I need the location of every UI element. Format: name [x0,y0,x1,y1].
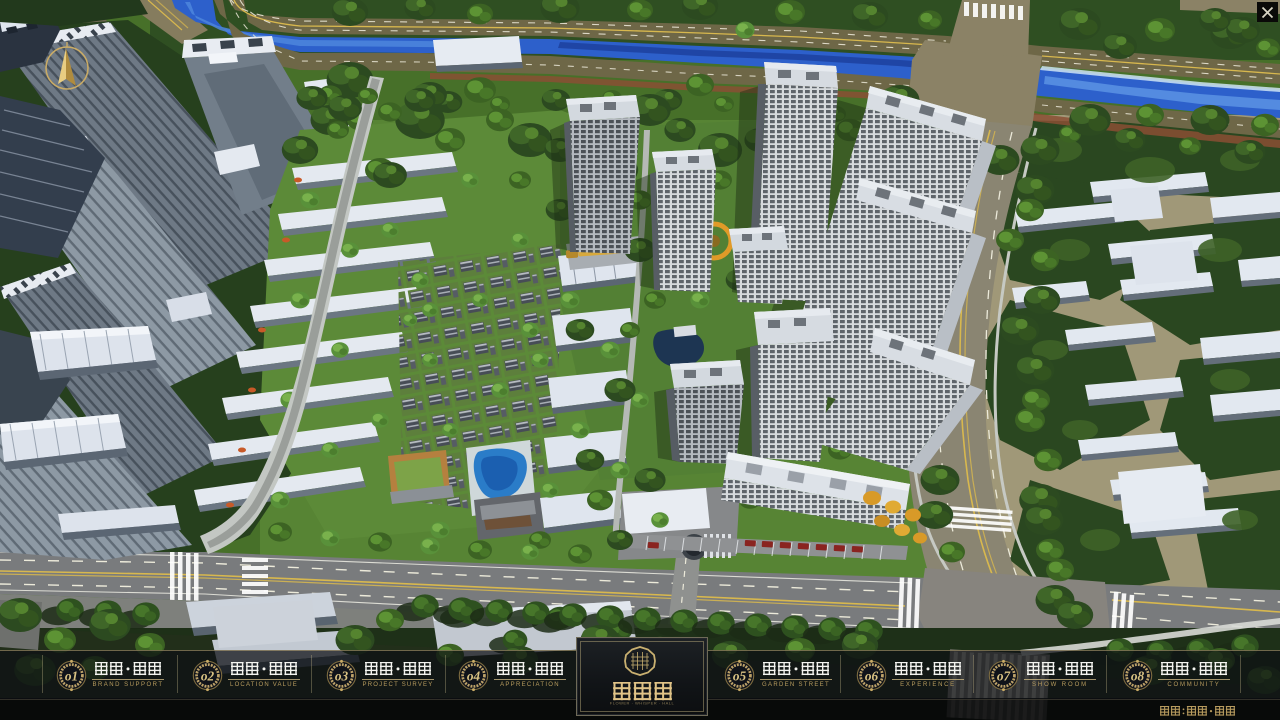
svg-text:o4: o4 [467,669,481,684]
svg-text:o7: o7 [997,669,1012,684]
svg-text:o6: o6 [865,669,879,684]
svg-text:o1: o1 [65,669,78,684]
svg-text:o5: o5 [733,669,747,684]
svg-text:o3: o3 [335,669,349,684]
svg-text:o2: o2 [201,669,215,684]
svg-text:o8: o8 [1131,669,1145,684]
